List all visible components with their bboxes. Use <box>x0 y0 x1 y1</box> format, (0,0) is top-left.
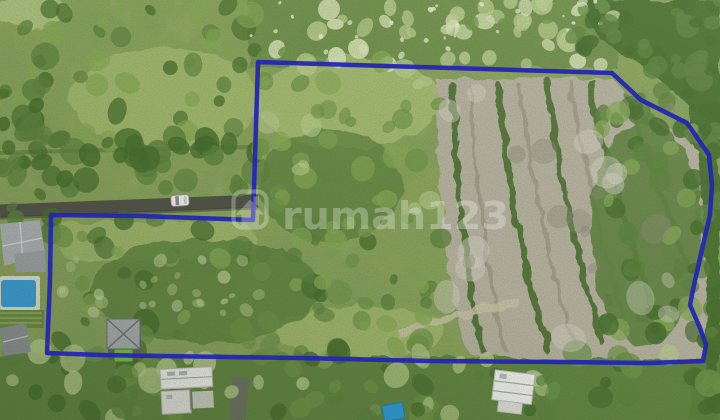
watermark-text: rumah123 <box>282 194 509 238</box>
watermark-house-body <box>242 213 260 228</box>
aerial-photo-canvas: rumah123 <box>0 0 720 420</box>
aerial-photo: rumah123 <box>0 0 720 420</box>
